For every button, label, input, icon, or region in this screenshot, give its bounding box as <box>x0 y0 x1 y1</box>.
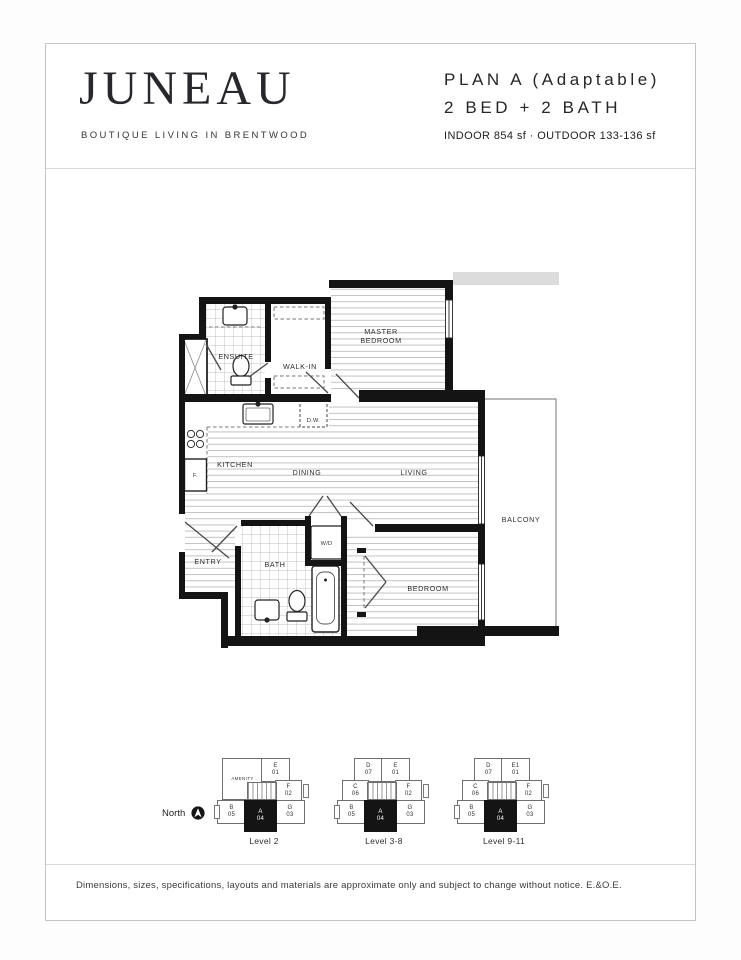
disclaimer-text: Dimensions, sizes, specifications, layou… <box>76 880 622 891</box>
north-indicator: North <box>162 806 205 820</box>
keyplan-unit-e1: E101 <box>501 758 530 782</box>
keyplan-unit-a-highlighted: A04 <box>244 800 277 832</box>
label-bedroom: BEDROOM <box>407 584 448 593</box>
room-entry <box>185 514 235 592</box>
label-kitchen: KITCHEN <box>217 460 253 469</box>
plan-subtitle: 2 BED + 2 BATH <box>444 98 621 118</box>
label-ensuite: ENSUITE <box>218 352 253 361</box>
keyplan-unit-d: D07 <box>474 758 503 782</box>
keyplan-unit-b: B05 <box>457 800 486 824</box>
keyplan-wing <box>423 784 429 798</box>
juneau-logo: JUNEAU <box>79 64 296 114</box>
bath-toilet <box>287 591 307 622</box>
north-label: North <box>162 808 185 819</box>
label-fridge: F. <box>193 473 198 479</box>
keyplan-core <box>487 782 517 800</box>
adjacent-balcony-band <box>453 272 559 285</box>
plan-area-stats: INDOOR 854 sf · OUTDOOR 133-136 sf <box>444 130 656 142</box>
keyplan-level-label: Level 9-11 <box>454 836 554 846</box>
keyplan-wing <box>214 805 220 819</box>
keyplan-unit-e: E01 <box>261 758 290 782</box>
keyplan-unit-b: B05 <box>217 800 246 824</box>
keyplan-wing <box>303 784 309 798</box>
label-master-2: BEDROOM <box>360 336 401 345</box>
label-dishwasher: D.W. <box>307 418 320 424</box>
label-balcony: BALCONY <box>502 515 541 524</box>
keyplan-unit-g: G03 <box>395 800 425 824</box>
label-washer-dryer: W/D <box>321 541 333 547</box>
bedroom-window <box>479 564 485 620</box>
floorplan-svg: ENSUITE WALK-IN MASTER BEDROOM D.W. KITC… <box>179 264 561 658</box>
keyplan-unit-f: F02 <box>275 780 302 802</box>
master-window <box>446 300 453 338</box>
keyplan-level-3-8: D07 E01 C06 F02 B05 A04 G03 Level 3-8 <box>334 758 434 846</box>
floorplan: ENSUITE WALK-IN MASTER BEDROOM D.W. KITC… <box>179 264 561 658</box>
keyplan-unit-c: C06 <box>342 780 369 802</box>
keyplan-unit-a-highlighted: A04 <box>364 800 397 832</box>
keyplan-unit-b: B05 <box>337 800 366 824</box>
keyplan-unit-f: F02 <box>395 780 422 802</box>
label-dining: DINING <box>293 468 322 477</box>
keyplan-core <box>367 782 397 800</box>
footer-divider <box>46 864 695 865</box>
keyplan-level-9-11: D07 E101 C06 F02 B05 A04 G03 Level 9-11 <box>454 758 554 846</box>
keyplan-unit-e: E01 <box>381 758 410 782</box>
bath-sink <box>255 600 279 622</box>
compass-icon <box>191 806 205 820</box>
kitchen-sink <box>243 402 273 424</box>
shower <box>183 339 207 397</box>
keyplan-core <box>247 782 277 800</box>
keyplan-unit-f: F02 <box>515 780 542 802</box>
keyplan-wing <box>334 805 340 819</box>
keyplan-wing <box>454 805 460 819</box>
label-walk-in: WALK-IN <box>283 362 317 371</box>
label-living: LIVING <box>400 468 427 477</box>
label-master-1: MASTER <box>364 327 398 336</box>
plan-title: PLAN A (Adaptable) <box>444 70 660 90</box>
keyplan-unit-c: C06 <box>462 780 489 802</box>
room-walk-in <box>271 304 325 394</box>
bathtub <box>312 566 339 632</box>
logo-tagline: BOUTIQUE LIVING IN BRENTWOOD <box>81 130 309 141</box>
keyplan-level-2: AMENITY E01 F02 B05 A04 G03 Level 2 <box>214 758 314 846</box>
room-balcony <box>485 399 556 626</box>
label-entry: ENTRY <box>194 557 221 566</box>
living-window <box>479 456 485 524</box>
keyplan-unit-d: D07 <box>354 758 383 782</box>
ensuite-sink <box>223 305 247 325</box>
label-bath: BATH <box>264 560 285 569</box>
header-divider <box>46 168 695 169</box>
keyplan-unit-g: G03 <box>515 800 545 824</box>
plan-sheet: JUNEAU BOUTIQUE LIVING IN BRENTWOOD PLAN… <box>45 43 696 921</box>
keyplan-unit-g: G03 <box>275 800 305 824</box>
keyplan-level-label: Level 3-8 <box>334 836 434 846</box>
keyplan-unit-a-highlighted: A04 <box>484 800 517 832</box>
keyplan-wing <box>543 784 549 798</box>
keyplan-level-label: Level 2 <box>214 836 314 846</box>
